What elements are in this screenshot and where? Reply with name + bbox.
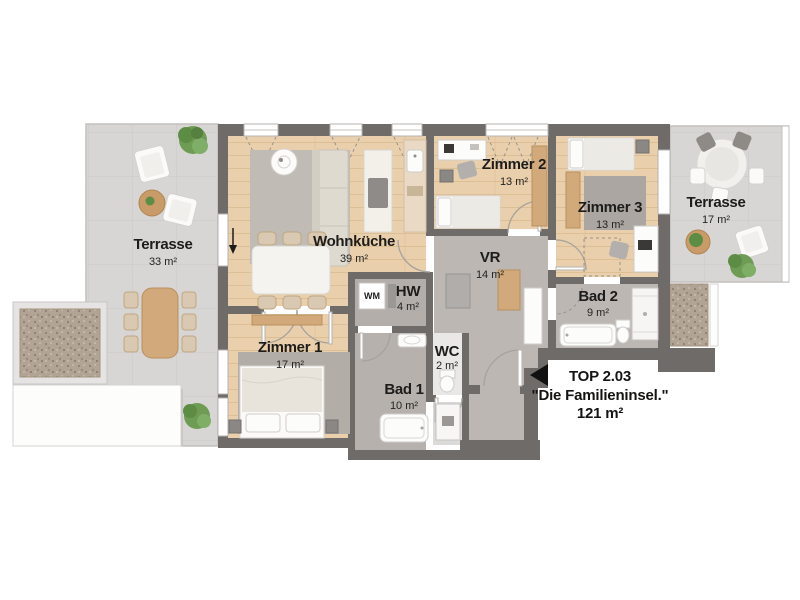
zimmer3-label: Zimmer 3 — [578, 199, 642, 216]
terrace-right-area: 17 m² — [702, 214, 730, 226]
bad1-label: Bad 1 — [384, 381, 423, 398]
gravel-bed-right — [670, 284, 708, 346]
zimmer2-label: Zimmer 2 — [482, 156, 546, 173]
desk — [438, 140, 486, 160]
wc-fixtures — [440, 370, 455, 392]
zimmer1-area: 17 m² — [276, 359, 304, 371]
plant-table — [686, 230, 710, 254]
nightstand — [326, 420, 338, 433]
washbasin — [398, 334, 426, 347]
shower — [632, 288, 658, 340]
washing-machine-label: WM — [364, 291, 380, 301]
nightstand — [229, 420, 241, 433]
gravel-bed — [20, 309, 100, 377]
bad2-label: Bad 2 — [578, 288, 617, 305]
window — [218, 350, 228, 394]
side-table — [139, 190, 165, 216]
vr-label: VR — [480, 249, 501, 266]
floor-plan-page: Terrasse 33 m² Terrasse 17 m² — [0, 0, 800, 600]
nightstand — [636, 140, 649, 153]
single-bed — [568, 138, 634, 170]
terrace-left-label: Terrasse — [133, 236, 192, 253]
sideboard — [252, 315, 322, 325]
terrace-right-label: Terrasse — [686, 194, 745, 211]
single-bed — [436, 196, 500, 228]
wc-area: 2 m² — [436, 360, 458, 372]
bad1-area: 10 m² — [390, 400, 418, 412]
bad2-area: 9 m² — [587, 307, 609, 319]
floor-plan-canvas: Terrasse 33 m² Terrasse 17 m² — [0, 0, 800, 600]
wc-label: WC — [435, 343, 460, 360]
unit-name: "Die Familieninsel." — [532, 387, 669, 404]
patio-edge-right — [710, 284, 718, 346]
bench-cabinet — [446, 274, 470, 308]
unit-number: TOP 2.03 — [569, 368, 631, 385]
entrance-door-leaf — [518, 350, 522, 386]
terrace-right: Terrasse 17 m² — [670, 126, 789, 282]
kitchen-island — [364, 150, 392, 232]
toilet — [440, 376, 454, 392]
hw-appliances: WM — [359, 283, 396, 309]
nightstand — [440, 170, 453, 182]
bathtub — [380, 414, 428, 442]
wohnkueche-area: 39 m² — [340, 253, 368, 265]
double-bed — [240, 366, 324, 438]
tall-cabinet — [524, 288, 542, 344]
kitchen-counter — [404, 140, 426, 232]
window — [658, 150, 670, 214]
zimmer3-area: 13 m² — [596, 219, 624, 231]
bathtub — [560, 324, 616, 346]
hw-area: 4 m² — [397, 301, 419, 313]
zimmer2-area: 13 m² — [500, 176, 528, 188]
utility-unit — [388, 284, 396, 308]
planter-left — [13, 302, 107, 384]
toilet — [616, 320, 630, 343]
coffee-table — [271, 149, 297, 175]
hw-label: HW — [396, 283, 422, 300]
entry-closet — [436, 404, 460, 440]
vr-area: 14 m² — [476, 269, 504, 281]
window — [218, 398, 228, 436]
wohnkueche-label: Wohnküche — [313, 233, 395, 250]
unit-title-block: TOP 2.03 "Die Familieninsel." 121 m² — [530, 364, 669, 422]
outdoor-dining-table — [124, 288, 196, 358]
zimmer1-label: Zimmer 1 — [258, 339, 322, 356]
unit-area: 121 m² — [577, 405, 624, 422]
terrace-left-area: 33 m² — [149, 256, 177, 268]
desk — [634, 226, 658, 272]
terrace-railing — [782, 126, 789, 282]
lower-patio — [13, 385, 181, 446]
terrace-door — [218, 214, 228, 266]
